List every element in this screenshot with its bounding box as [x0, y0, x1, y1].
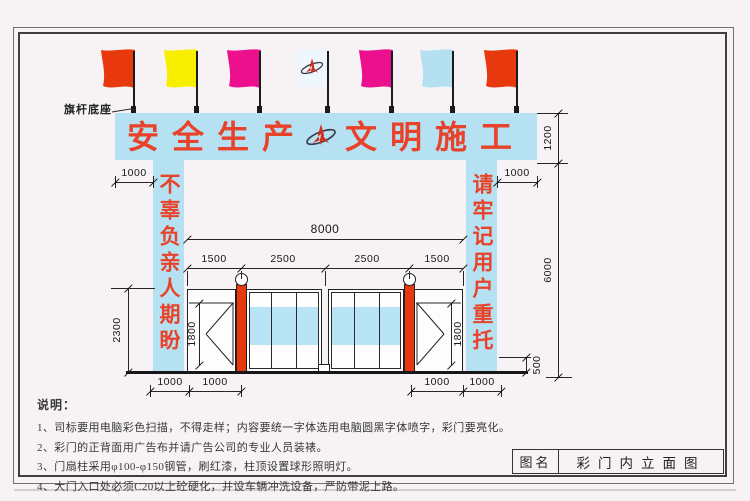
gate-mullion	[379, 293, 380, 368]
gate-mullion	[271, 293, 272, 368]
company-logo-icon	[299, 118, 343, 156]
flag-6-lightblue-icon	[419, 48, 455, 92]
note-item-2: 2、彩门的正背面用广告布并请广告公司的专业人员装裱。	[37, 439, 510, 455]
flag-5-magenta-icon	[358, 48, 394, 92]
note-item-3: 3、门扇柱采用φ100-φ150钢管，刷红漆，柱顶设置球形照明灯。	[37, 458, 510, 474]
ground-line	[126, 371, 528, 374]
notes-block: 说明： 1、司标要用电脑彩色扫描，不得走样；内容要统一字体选用电脑圆黑字体喷字，…	[37, 396, 510, 497]
flag-pole-base	[514, 106, 519, 113]
flag-2-yellow-icon	[163, 48, 199, 92]
banner: 安全生产 文明施工	[115, 113, 537, 160]
flag-pole	[327, 51, 329, 113]
left-gate-leaf	[246, 289, 322, 372]
notes-heading: 说明：	[37, 396, 510, 413]
title-block-label: 图名	[513, 450, 559, 473]
flag-pole	[196, 51, 198, 113]
flag-pole-base	[325, 106, 330, 113]
flag-pole-base	[389, 106, 394, 113]
flag-pole	[259, 51, 261, 113]
gate-leaf-frame	[249, 292, 319, 369]
flag-pole	[133, 51, 135, 113]
flag-pole-base	[194, 106, 199, 113]
flag-pole-base	[131, 106, 136, 113]
flag-4-logo-icon	[294, 48, 330, 92]
left-pillar-slogan: 不辜负亲人期盼	[153, 173, 184, 355]
banner-slogan-right: 文明施工	[345, 121, 525, 153]
gate-leaf-frame	[331, 292, 401, 369]
gate-mullion	[354, 293, 355, 368]
right-gate-leaf	[328, 289, 404, 372]
flag-pole-base	[257, 106, 262, 113]
flag-pole	[391, 51, 393, 113]
banner-slogan-left: 安全生产	[127, 121, 307, 153]
flag-3-magenta-icon	[226, 48, 262, 92]
drawing-title: 彩门内立面图	[559, 450, 723, 473]
drawing-sheet: 旗杆底座 安全生产 文明施工 不辜负亲人期盼 请牢记用户重托	[0, 0, 750, 501]
flag-1-red-icon	[100, 48, 136, 92]
title-block: 图名 彩门内立面图	[512, 449, 724, 474]
left-pillar: 不辜负亲人期盼	[153, 160, 184, 373]
flag-7-red-icon	[483, 48, 519, 92]
flag-pole-base	[450, 106, 455, 113]
left-red-column	[236, 284, 247, 373]
note-item-1: 1、司标要用电脑彩色扫描，不得走样；内容要统一字体选用电脑圆黑字体喷字，彩门要亮…	[37, 419, 510, 435]
right-pillar-slogan: 请牢记用户重托	[466, 173, 497, 355]
flag-pole	[452, 51, 454, 113]
right-red-column	[404, 284, 415, 373]
flag-base-label: 旗杆底座	[64, 101, 112, 117]
gate-mullion	[296, 293, 297, 368]
note-item-4: 4、大门入口处必须C20以上砼硬化，并设车辆冲洗设备，严防带泥上路。	[37, 478, 510, 494]
flag-pole	[516, 51, 518, 113]
right-pillar: 请牢记用户重托	[466, 160, 497, 373]
